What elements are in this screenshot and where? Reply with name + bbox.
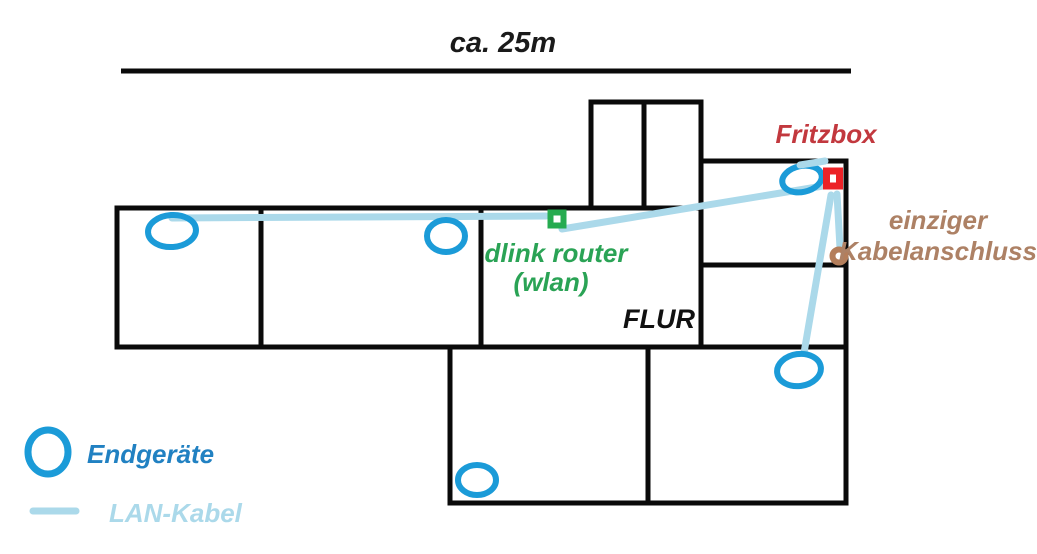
floorplan-walls (115, 100, 849, 506)
diagram-svg: ca. 25m Fritzbox einziger Kabelanschluss… (0, 0, 1037, 554)
endgeraet-marker (775, 351, 823, 389)
legend-endgeraete-label: Endgeräte (87, 439, 214, 469)
scale-label: ca. 25m (450, 27, 556, 59)
lan-cable (172, 216, 546, 218)
network-floorplan-diagram: ca. 25m Fritzbox einziger Kabelanschluss… (0, 0, 1037, 554)
dlink-router-marker (551, 213, 564, 226)
lan-cable (800, 161, 825, 165)
endgeraet-marker (427, 220, 465, 252)
lan-cable (804, 195, 831, 353)
fritzbox-label: Fritzbox (775, 119, 878, 149)
legend-lan-kabel-label: LAN-Kabel (109, 498, 243, 528)
kabelanschluss-label-line1: einziger (889, 205, 989, 235)
dlink-router-label-line1: dlink router (484, 238, 629, 268)
flur-label: FLUR (623, 304, 695, 334)
fritzbox-marker (827, 171, 840, 186)
endgeraet-marker (458, 465, 496, 495)
kabelanschluss-label-line2: Kabelanschluss (839, 236, 1037, 266)
endgeraete-markers (147, 162, 824, 495)
legend-endgeraet-icon (28, 430, 68, 474)
lan-cables (172, 186, 840, 353)
dlink-router-label-line2: (wlan) (513, 267, 588, 297)
